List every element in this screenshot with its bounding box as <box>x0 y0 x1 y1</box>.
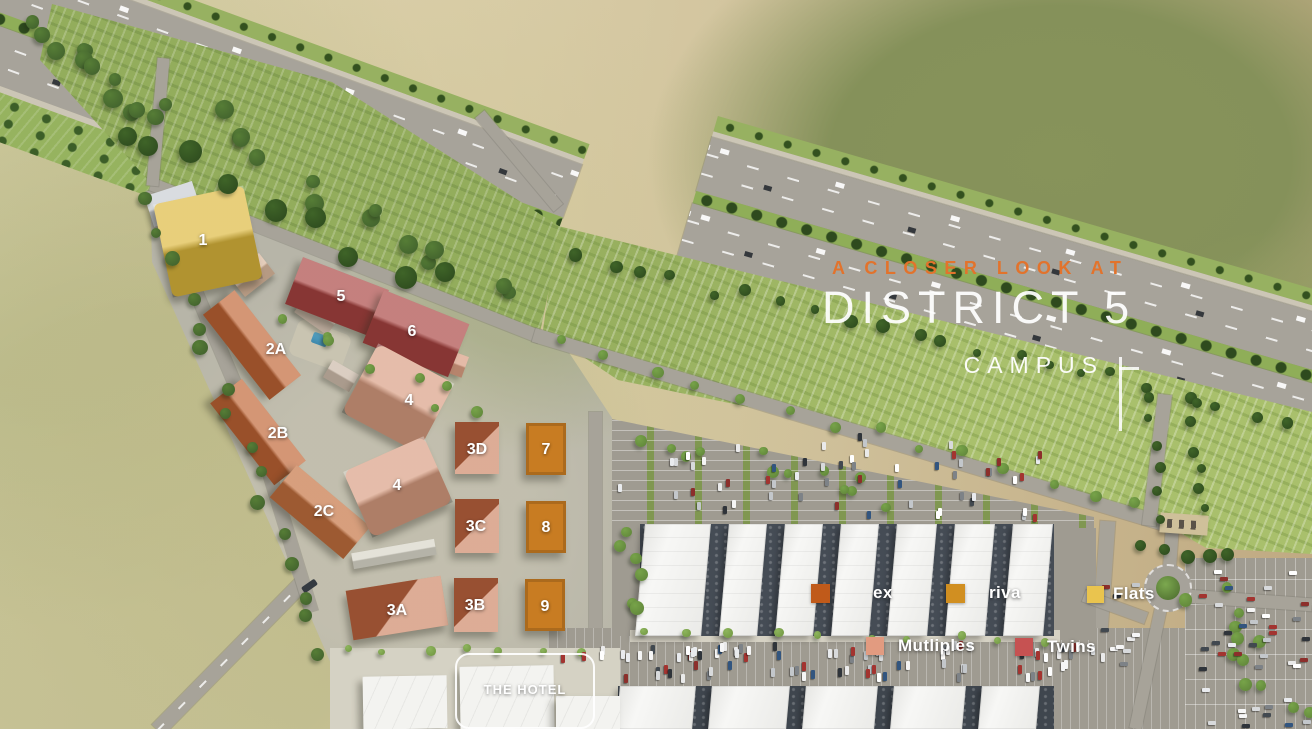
building-label-2c: 2C <box>314 503 334 521</box>
commercial-row <box>640 524 1054 636</box>
title-sub: CAMPUS <box>822 352 1104 379</box>
building-label-6: 6 <box>408 323 417 341</box>
white-building <box>635 524 711 636</box>
color-swatch <box>1087 586 1104 603</box>
building-label-1: 1 <box>199 232 208 250</box>
white-building <box>890 686 966 729</box>
legend-item-mutliples: Mutliples <box>866 636 975 656</box>
building-label-2b: 2B <box>268 425 288 443</box>
color-swatch <box>1015 638 1033 656</box>
legend-item-ex: ex <box>811 583 893 603</box>
white-building <box>708 686 790 729</box>
building-label-9: 9 <box>541 598 550 616</box>
building-label-3d: 3D <box>467 441 487 459</box>
building-label-5: 5 <box>337 288 346 306</box>
white-building <box>945 524 995 636</box>
white-building <box>719 524 767 636</box>
entrance-gate <box>1159 512 1208 535</box>
building-label-3b: 3B <box>465 597 485 615</box>
white-building <box>887 524 937 636</box>
title-eyebrow: A CLOSER LOOK AT <box>832 258 1128 279</box>
building-1 <box>153 185 263 297</box>
white-building <box>831 524 879 636</box>
color-swatch <box>946 584 965 603</box>
legend-item-twins: Twins <box>1015 637 1096 657</box>
legend-label: Twins <box>1047 637 1096 657</box>
white-building <box>802 686 878 729</box>
white-building <box>363 675 448 729</box>
white-building <box>775 524 823 636</box>
masterplan-map: 1 5 6 2A 4 2B 2C 4 3D 7 3C 8 3A 3B 9 ex … <box>0 0 1312 729</box>
color-swatch <box>866 637 884 655</box>
commercial-row-south <box>618 686 1054 729</box>
color-swatch <box>811 584 830 603</box>
legend-label: ex <box>873 583 893 603</box>
legend-item-riva: riva <box>946 583 1021 603</box>
building-label-4s: 4 <box>393 477 402 495</box>
building-label-8: 8 <box>542 519 551 537</box>
legend-label: Flats <box>1113 584 1155 604</box>
legend-item-flats: Flats <box>1087 584 1155 604</box>
white-building <box>616 686 696 729</box>
east-parking-lot <box>1185 558 1312 729</box>
legend-label: riva <box>989 583 1021 603</box>
white-building <box>978 686 1040 729</box>
hotel-label: THE HOTEL <box>484 682 567 697</box>
hotel-outline: THE HOTEL <box>455 653 595 729</box>
building-label-7: 7 <box>542 441 551 459</box>
building-label-3a: 3A <box>387 602 407 620</box>
white-building <box>1003 524 1053 636</box>
page-title: DISTRICT 5 <box>822 282 1136 334</box>
building-label-4n: 4 <box>405 392 414 410</box>
building-label-2a: 2A <box>266 341 286 359</box>
building-label-3c: 3C <box>466 518 486 536</box>
flagpole-icon <box>1119 367 1139 370</box>
legend-label: Mutliples <box>898 636 975 656</box>
roundabout-island <box>1156 576 1180 600</box>
